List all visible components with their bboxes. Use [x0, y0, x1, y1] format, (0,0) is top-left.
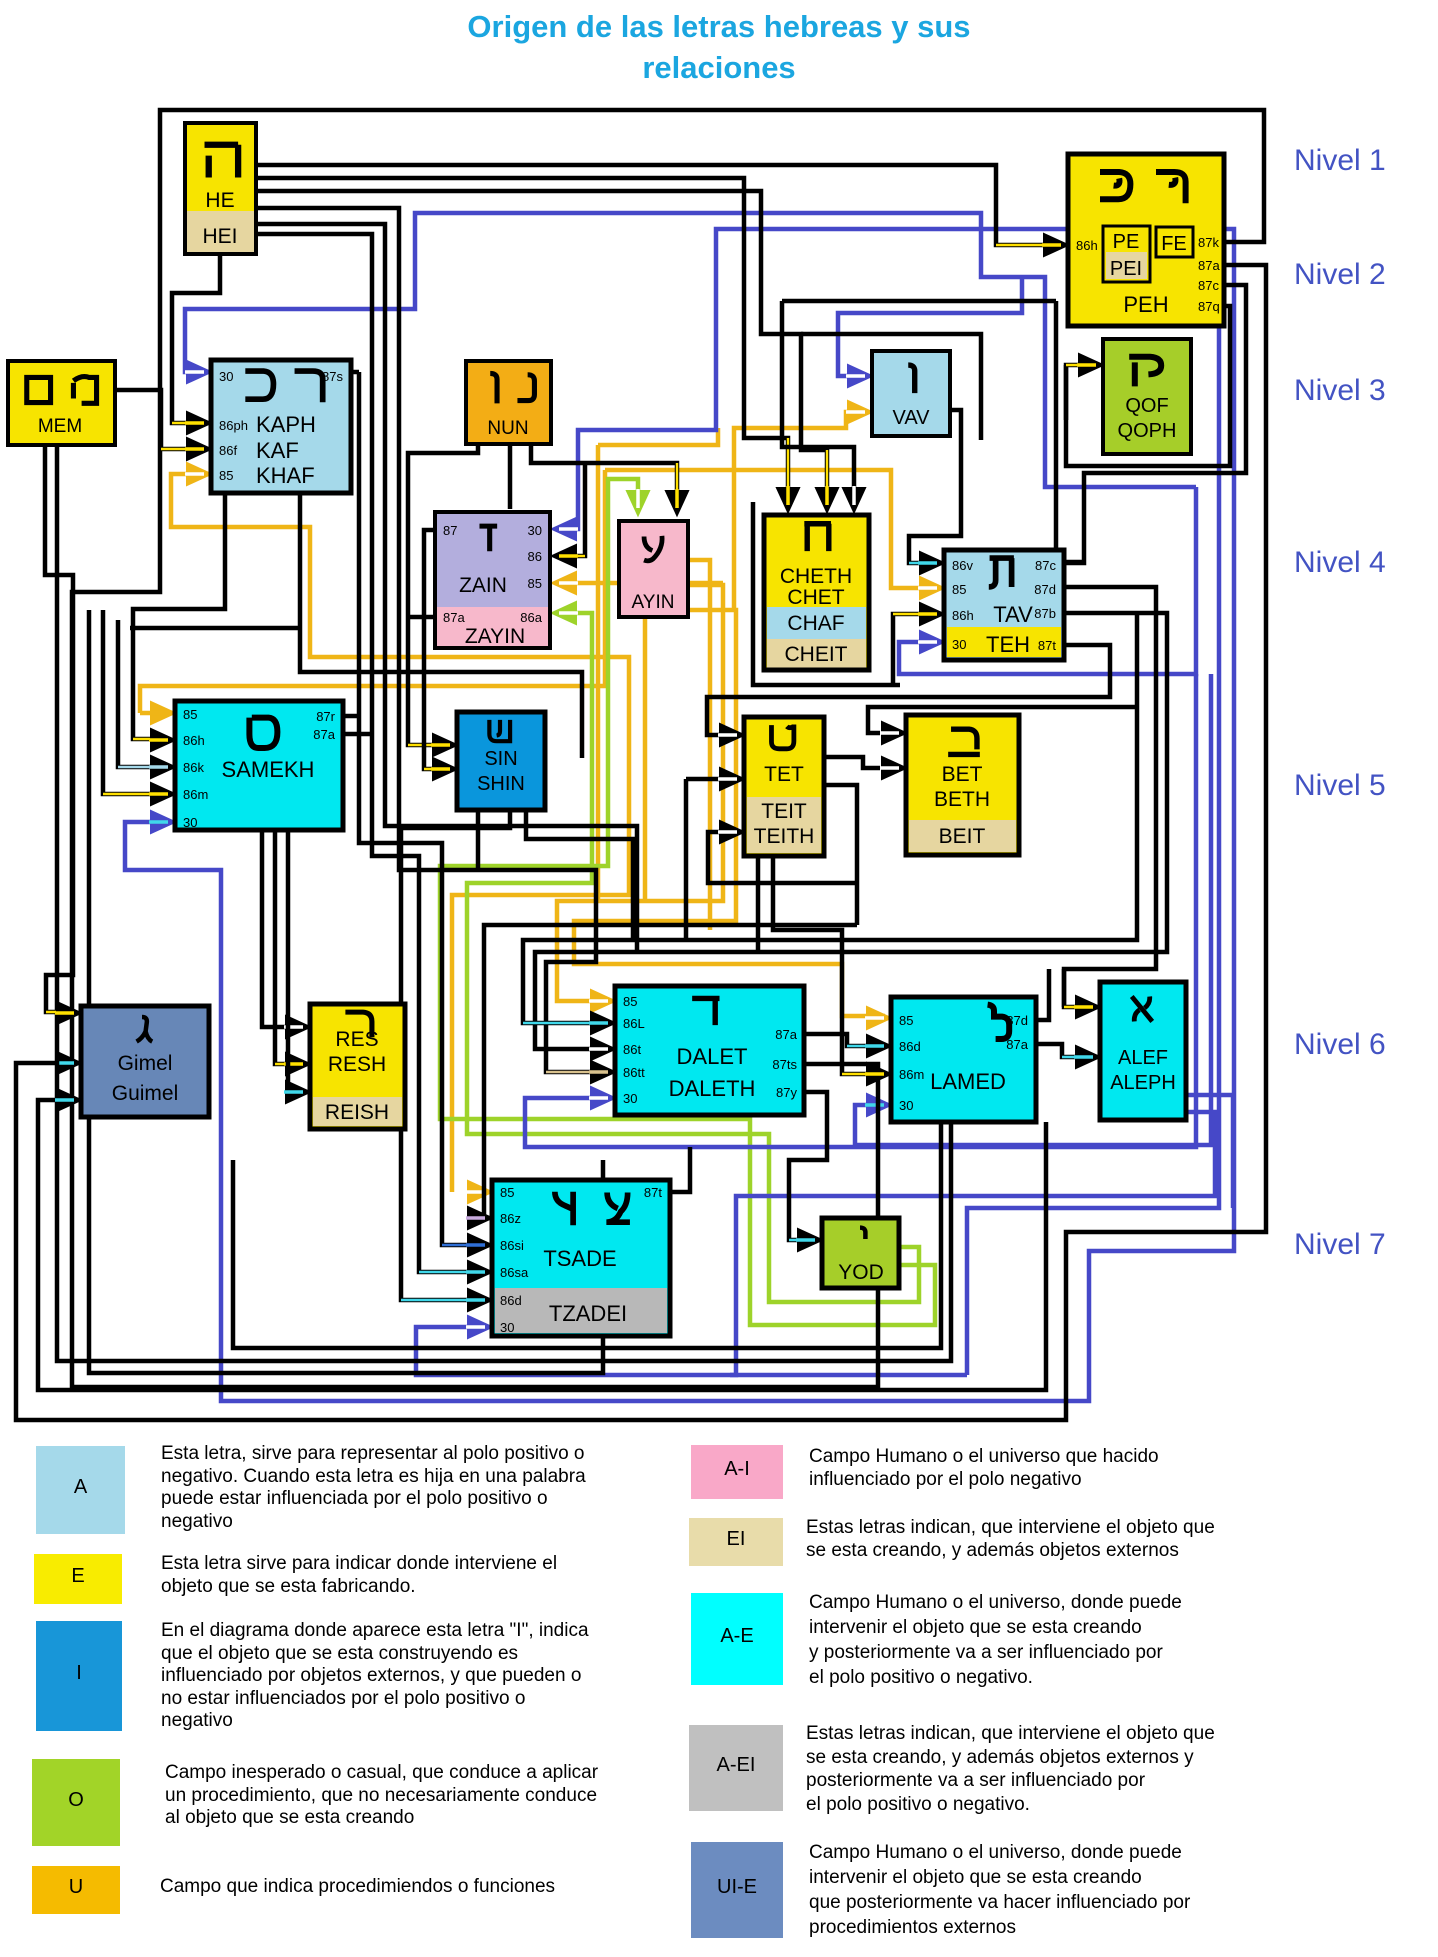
svg-text:HE: HE [205, 189, 234, 212]
svg-text:PE: PE [1113, 231, 1140, 253]
svg-text:30: 30 [623, 1091, 637, 1106]
svg-text:PEI: PEI [1110, 258, 1142, 280]
svg-text:HEI: HEI [202, 225, 237, 248]
svg-text:TEIT: TEIT [761, 800, 807, 823]
svg-text:ALEF: ALEF [1118, 1047, 1168, 1069]
svg-text:PEH: PEH [1123, 292, 1168, 317]
svg-text:86h: 86h [1076, 238, 1098, 253]
svg-text:87a: 87a [775, 1027, 797, 1042]
svg-text:TZADEI: TZADEI [549, 1301, 627, 1326]
svg-text:87t: 87t [644, 1185, 662, 1200]
svg-text:85: 85 [500, 1185, 514, 1200]
svg-text:85: 85 [952, 582, 966, 597]
svg-text:YOD: YOD [838, 1261, 884, 1284]
svg-text:87a: 87a [443, 610, 465, 625]
svg-text:87t: 87t [1038, 638, 1056, 653]
svg-text:AYIN: AYIN [632, 592, 675, 613]
svg-text:TEITH: TEITH [754, 825, 815, 848]
svg-text:87: 87 [443, 523, 457, 538]
svg-text:Guimel: Guimel [112, 1082, 179, 1105]
svg-text:87q: 87q [1198, 299, 1220, 314]
svg-text:86v: 86v [952, 558, 973, 573]
svg-text:TET: TET [764, 763, 804, 786]
svg-text:87ts: 87ts [772, 1057, 797, 1072]
svg-text:87a: 87a [1198, 258, 1220, 273]
svg-text:BETH: BETH [934, 788, 990, 811]
svg-text:87r: 87r [316, 709, 335, 724]
svg-text:SAMEKH: SAMEKH [222, 757, 315, 782]
svg-text:REISH: REISH [325, 1101, 389, 1124]
svg-text:86d: 86d [899, 1039, 921, 1054]
svg-text:TEH: TEH [986, 632, 1030, 657]
svg-text:30: 30 [500, 1320, 514, 1335]
svg-text:86h: 86h [183, 733, 205, 748]
svg-text:KHAF: KHAF [256, 463, 315, 488]
svg-text:TSADE: TSADE [543, 1246, 616, 1271]
svg-text:86m: 86m [899, 1067, 924, 1082]
svg-text:87b: 87b [1034, 606, 1056, 621]
svg-text:85: 85 [219, 468, 233, 483]
svg-text:Gimel: Gimel [118, 1052, 173, 1075]
svg-text:LAMED: LAMED [930, 1069, 1006, 1094]
svg-text:87c: 87c [1198, 278, 1219, 293]
svg-text:CHEIT: CHEIT [785, 643, 848, 666]
svg-text:87c: 87c [1035, 558, 1056, 573]
svg-text:86a: 86a [520, 610, 542, 625]
svg-text:86ph: 86ph [219, 418, 248, 433]
svg-text:87k: 87k [1198, 235, 1219, 250]
svg-text:30: 30 [952, 637, 966, 652]
svg-text:SHIN: SHIN [477, 773, 525, 795]
svg-text:30: 30 [219, 369, 233, 384]
svg-text:85: 85 [183, 707, 197, 722]
svg-text:85: 85 [899, 1013, 913, 1028]
svg-text:87a: 87a [313, 727, 335, 742]
svg-text:30: 30 [528, 523, 542, 538]
svg-text:QOPH: QOPH [1118, 420, 1177, 442]
svg-text:87a: 87a [1006, 1037, 1028, 1052]
svg-text:SIN: SIN [484, 748, 517, 770]
svg-text:86: 86 [528, 549, 542, 564]
svg-text:85: 85 [623, 994, 637, 1009]
svg-text:ALEPH: ALEPH [1110, 1072, 1176, 1094]
svg-text:86m: 86m [183, 787, 208, 802]
svg-text:BET: BET [942, 763, 983, 786]
svg-text:RESH: RESH [328, 1053, 386, 1076]
svg-text:86h: 86h [952, 608, 974, 623]
svg-text:86f: 86f [219, 443, 237, 458]
svg-text:86L: 86L [623, 1016, 645, 1031]
svg-text:ZAYIN: ZAYIN [465, 625, 525, 648]
svg-text:FE: FE [1161, 233, 1187, 255]
svg-text:CHET: CHET [787, 586, 844, 609]
svg-text:VAV: VAV [892, 407, 930, 429]
svg-text:MEM: MEM [38, 416, 82, 437]
svg-text:86tt: 86tt [623, 1065, 645, 1080]
svg-text:87y: 87y [776, 1085, 797, 1100]
svg-text:30: 30 [899, 1098, 913, 1113]
svg-text:RES: RES [335, 1028, 378, 1051]
svg-text:87d: 87d [1034, 582, 1056, 597]
svg-text:BEIT: BEIT [939, 825, 986, 848]
svg-text:86d: 86d [500, 1293, 522, 1308]
svg-text:86z: 86z [500, 1211, 521, 1226]
svg-text:ZAIN: ZAIN [459, 574, 507, 597]
svg-text:86sa: 86sa [500, 1265, 529, 1280]
svg-text:KAPH: KAPH [256, 412, 316, 437]
svg-text:85: 85 [528, 576, 542, 591]
svg-text:DALETH: DALETH [669, 1076, 756, 1101]
svg-text:86t: 86t [623, 1042, 641, 1057]
svg-text:CHAF: CHAF [787, 612, 844, 635]
svg-text:30: 30 [183, 815, 197, 830]
svg-text:TAV: TAV [993, 602, 1033, 627]
svg-text:DALET: DALET [677, 1044, 748, 1069]
svg-text:86si: 86si [500, 1238, 524, 1253]
svg-text:KAF: KAF [256, 438, 299, 463]
svg-text:86k: 86k [183, 760, 204, 775]
svg-text:QOF: QOF [1125, 395, 1168, 417]
svg-text:NUN: NUN [487, 418, 528, 439]
svg-text:CHETH: CHETH [780, 565, 852, 588]
